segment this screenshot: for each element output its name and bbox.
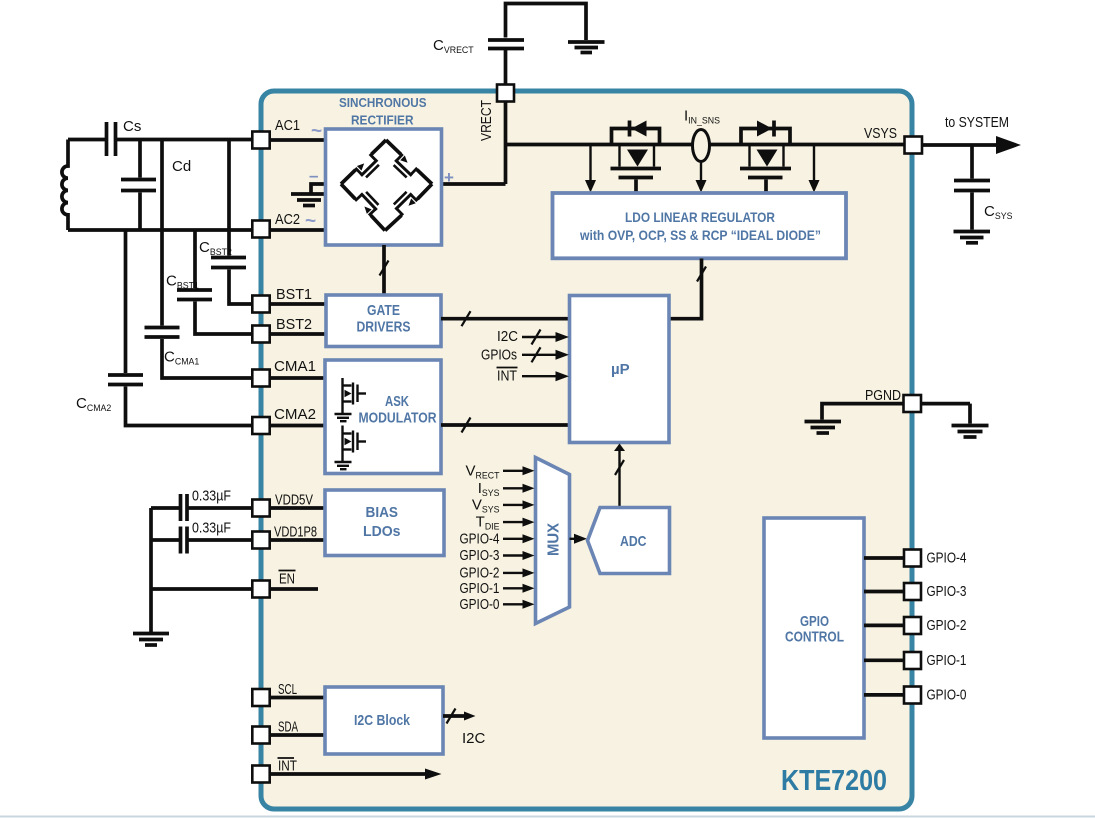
svg-text:SDA: SDA: [278, 719, 298, 736]
svg-text:GPIO-4: GPIO-4: [927, 550, 967, 567]
svg-text:GPIO: GPIO: [800, 613, 829, 630]
svg-text:GPIO-3: GPIO-3: [927, 583, 967, 600]
svg-text:VDD1P8: VDD1P8: [274, 524, 317, 541]
svg-text:CONTROL: CONTROL: [785, 629, 844, 646]
svg-text:0.33µF: 0.33µF: [192, 520, 231, 537]
svg-text:RECTIFIER: RECTIFIER: [351, 113, 414, 128]
svg-text:INT: INT: [497, 368, 517, 385]
svg-text:AC2: AC2: [275, 211, 300, 228]
svg-text:+: +: [444, 168, 454, 187]
svg-text:with OVP, OCP, SS & RCP “IDEAL: with OVP, OCP, SS & RCP “IDEAL DIODE”: [579, 228, 821, 243]
svg-text:GPIO-1: GPIO-1: [927, 652, 967, 669]
svg-text:GPIO-2: GPIO-2: [927, 617, 967, 634]
svg-text:MUX: MUX: [546, 523, 563, 556]
svg-text:SINCHRONOUS: SINCHRONOUS: [339, 95, 427, 110]
svg-text:CMA1: CMA1: [274, 358, 316, 375]
svg-text:I2C: I2C: [497, 328, 518, 345]
svg-text:VRECT: VRECT: [478, 100, 495, 141]
svg-text:GPIO-3: GPIO-3: [460, 547, 500, 564]
svg-text:I2C Block: I2C Block: [354, 712, 411, 729]
svg-text:–: –: [309, 166, 318, 185]
svg-text:MODULATOR: MODULATOR: [359, 410, 437, 427]
svg-text:to SYSTEM: to SYSTEM: [945, 114, 1009, 131]
svg-text:CMA2: CMA2: [274, 406, 316, 423]
svg-text:PGND: PGND: [865, 387, 901, 404]
svg-text:VDD5V: VDD5V: [275, 492, 313, 509]
svg-text:I2C: I2C: [462, 730, 486, 747]
svg-text:INT: INT: [278, 758, 297, 775]
svg-text:GPIO-4: GPIO-4: [460, 530, 500, 547]
svg-text:BIAS: BIAS: [366, 504, 399, 521]
svg-text:SCL: SCL: [278, 681, 297, 698]
svg-text:EN: EN: [279, 571, 295, 588]
svg-text:BST1: BST1: [276, 286, 312, 303]
svg-text:GATE: GATE: [367, 302, 400, 319]
svg-text:BST2: BST2: [276, 316, 312, 333]
svg-text:GPIO-0: GPIO-0: [460, 596, 500, 613]
svg-text:GPIO-0: GPIO-0: [927, 687, 967, 704]
svg-text:µP: µP: [611, 361, 630, 378]
svg-text:0.33µF: 0.33µF: [192, 488, 231, 505]
svg-text:GPIOs: GPIOs: [481, 346, 517, 363]
svg-text:ADC: ADC: [620, 533, 647, 550]
svg-text:AC1: AC1: [275, 117, 300, 134]
svg-text:~: ~: [311, 121, 322, 142]
svg-text:GPIO-1: GPIO-1: [460, 580, 500, 597]
svg-text:LDO LINEAR REGULATOR: LDO LINEAR REGULATOR: [625, 209, 775, 225]
svg-text:Cd: Cd: [172, 158, 191, 175]
svg-text:Cs: Cs: [123, 118, 141, 135]
svg-text:LDOs: LDOs: [363, 523, 401, 540]
svg-text:KTE7200: KTE7200: [781, 765, 887, 797]
svg-text:VSYS: VSYS: [864, 125, 897, 142]
svg-text:ASK: ASK: [385, 393, 409, 410]
svg-text:~: ~: [305, 211, 316, 232]
svg-text:DRIVERS: DRIVERS: [357, 319, 411, 336]
